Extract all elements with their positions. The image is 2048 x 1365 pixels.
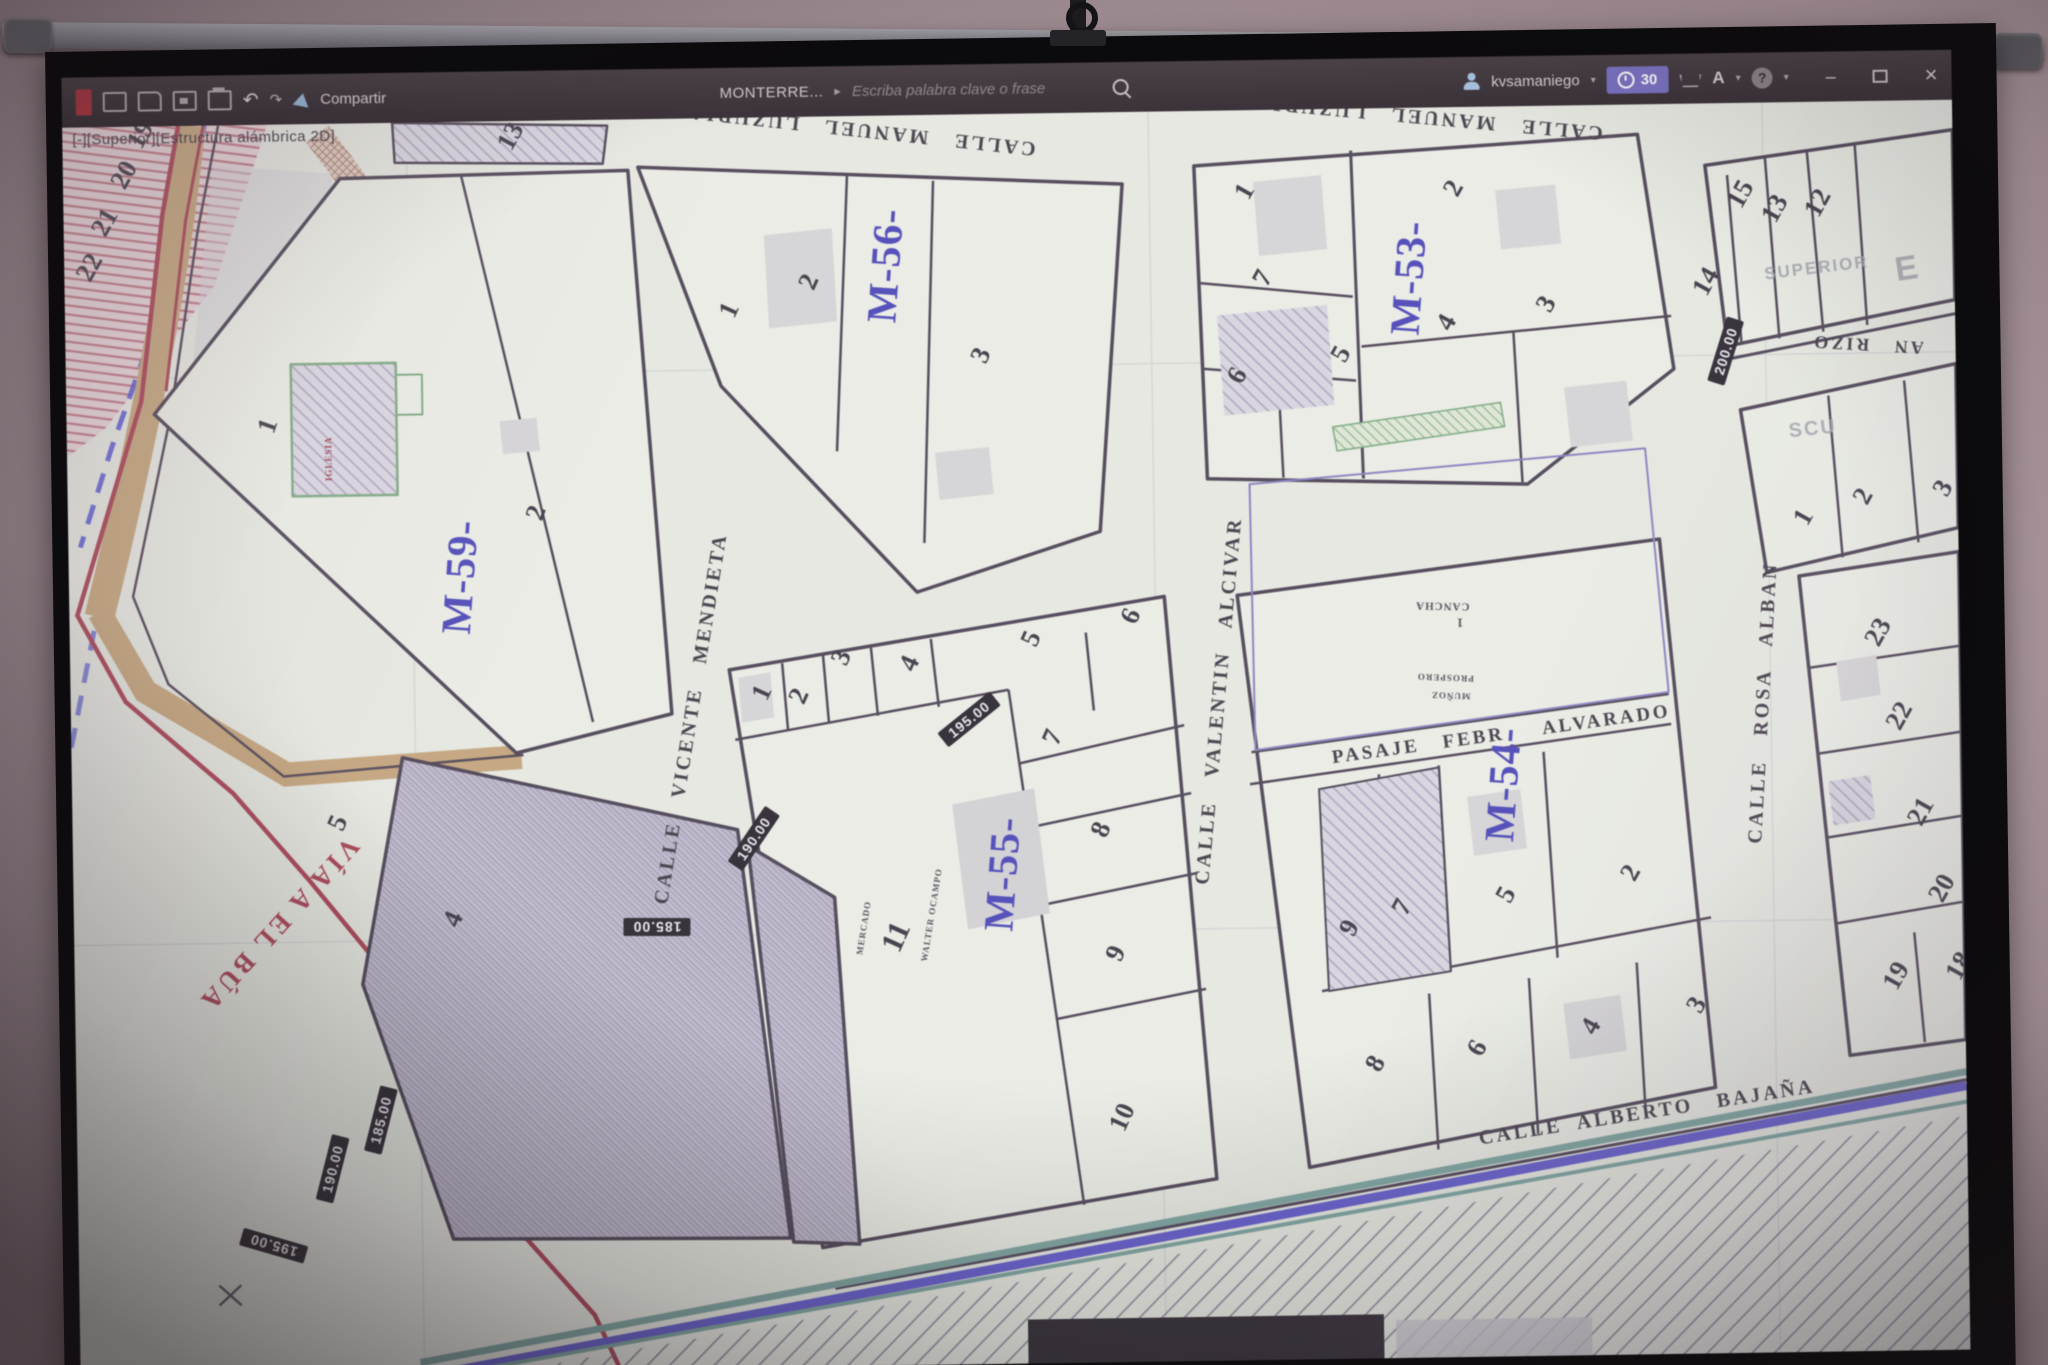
titlebar-right-group: kvsamaniego ▾ 30 A ▾ ? ▾ – × [1462,61,1938,95]
open-file-icon[interactable] [138,91,162,111]
user-menu-caret[interactable]: ▾ [1591,74,1596,85]
document-title: MONTERRE... [719,83,823,102]
map-geometry [62,100,1970,1365]
app-store-icon[interactable]: A [1712,68,1725,88]
screen-hanger-bracket [1042,0,1114,56]
ucs-axis-glyph [219,1285,241,1305]
app-logo-icon[interactable] [76,89,92,115]
app-store-caret[interactable]: ▾ [1736,72,1741,83]
bar-end-cap-right [1994,33,2042,69]
plot-icon[interactable] [208,90,232,110]
close-button[interactable]: × [1925,64,1938,86]
projection-screen-frame: ↶ ↷ Compartir MONTERRE... ▸ Escriba pala… [45,23,2017,1365]
bar-end-cap-left [4,17,52,53]
minimize-button[interactable]: – [1826,66,1836,87]
quick-access-toolbar: ↶ ↷ Compartir [76,85,387,116]
clock-icon [1618,71,1635,88]
command-window-fragment [1028,1311,1593,1363]
trial-minutes: 30 [1641,71,1658,88]
cart-icon[interactable] [1679,74,1701,87]
trial-timer-badge[interactable]: 30 [1606,65,1668,93]
save-icon[interactable] [173,91,197,111]
city-blocks [150,100,1969,1299]
help-icon[interactable]: ? [1752,67,1773,88]
help-caret[interactable]: ▾ [1784,72,1789,83]
new-file-icon[interactable] [103,92,127,112]
search-run-icon[interactable]: ▸ [834,83,841,99]
title-search-group: MONTERRE... ▸ Escriba palabra clave o fr… [719,78,1129,101]
map-canvas[interactable]: CALLE MANUEL LUZURIAGACALLE MANUEL LUZUR… [62,100,1970,1365]
share-button[interactable]: Compartir [320,89,386,107]
hanger-ring [1066,2,1098,34]
search-icon[interactable] [1113,79,1129,95]
share-icon [292,91,310,107]
redo-icon[interactable]: ↷ [270,92,283,107]
search-input[interactable]: Escriba palabra clave o frase [852,79,1102,100]
signed-in-user[interactable]: kvsamaniego [1491,72,1580,90]
restore-button[interactable] [1873,69,1888,82]
user-avatar-icon [1462,73,1480,91]
photo-of-projector-screen: ↶ ↷ Compartir MONTERRE... ▸ Escriba pala… [0,0,2048,1365]
undo-icon[interactable]: ↶ [243,90,259,109]
projected-application: ↶ ↷ Compartir MONTERRE... ▸ Escriba pala… [61,50,1970,1365]
